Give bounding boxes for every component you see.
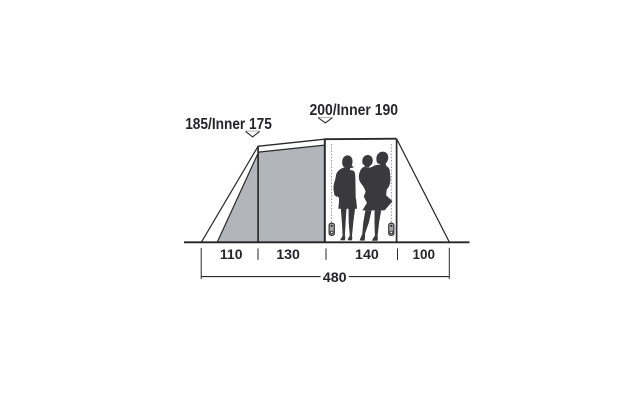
svg-text:130: 130: [276, 247, 300, 262]
svg-text:185/Inner 175: 185/Inner 175: [185, 116, 272, 133]
svg-text:100: 100: [413, 247, 436, 262]
svg-text:110: 110: [220, 247, 243, 262]
svg-text:140: 140: [355, 247, 379, 262]
svg-text:200/Inner 190: 200/Inner 190: [310, 102, 399, 119]
svg-text:480: 480: [323, 270, 347, 285]
